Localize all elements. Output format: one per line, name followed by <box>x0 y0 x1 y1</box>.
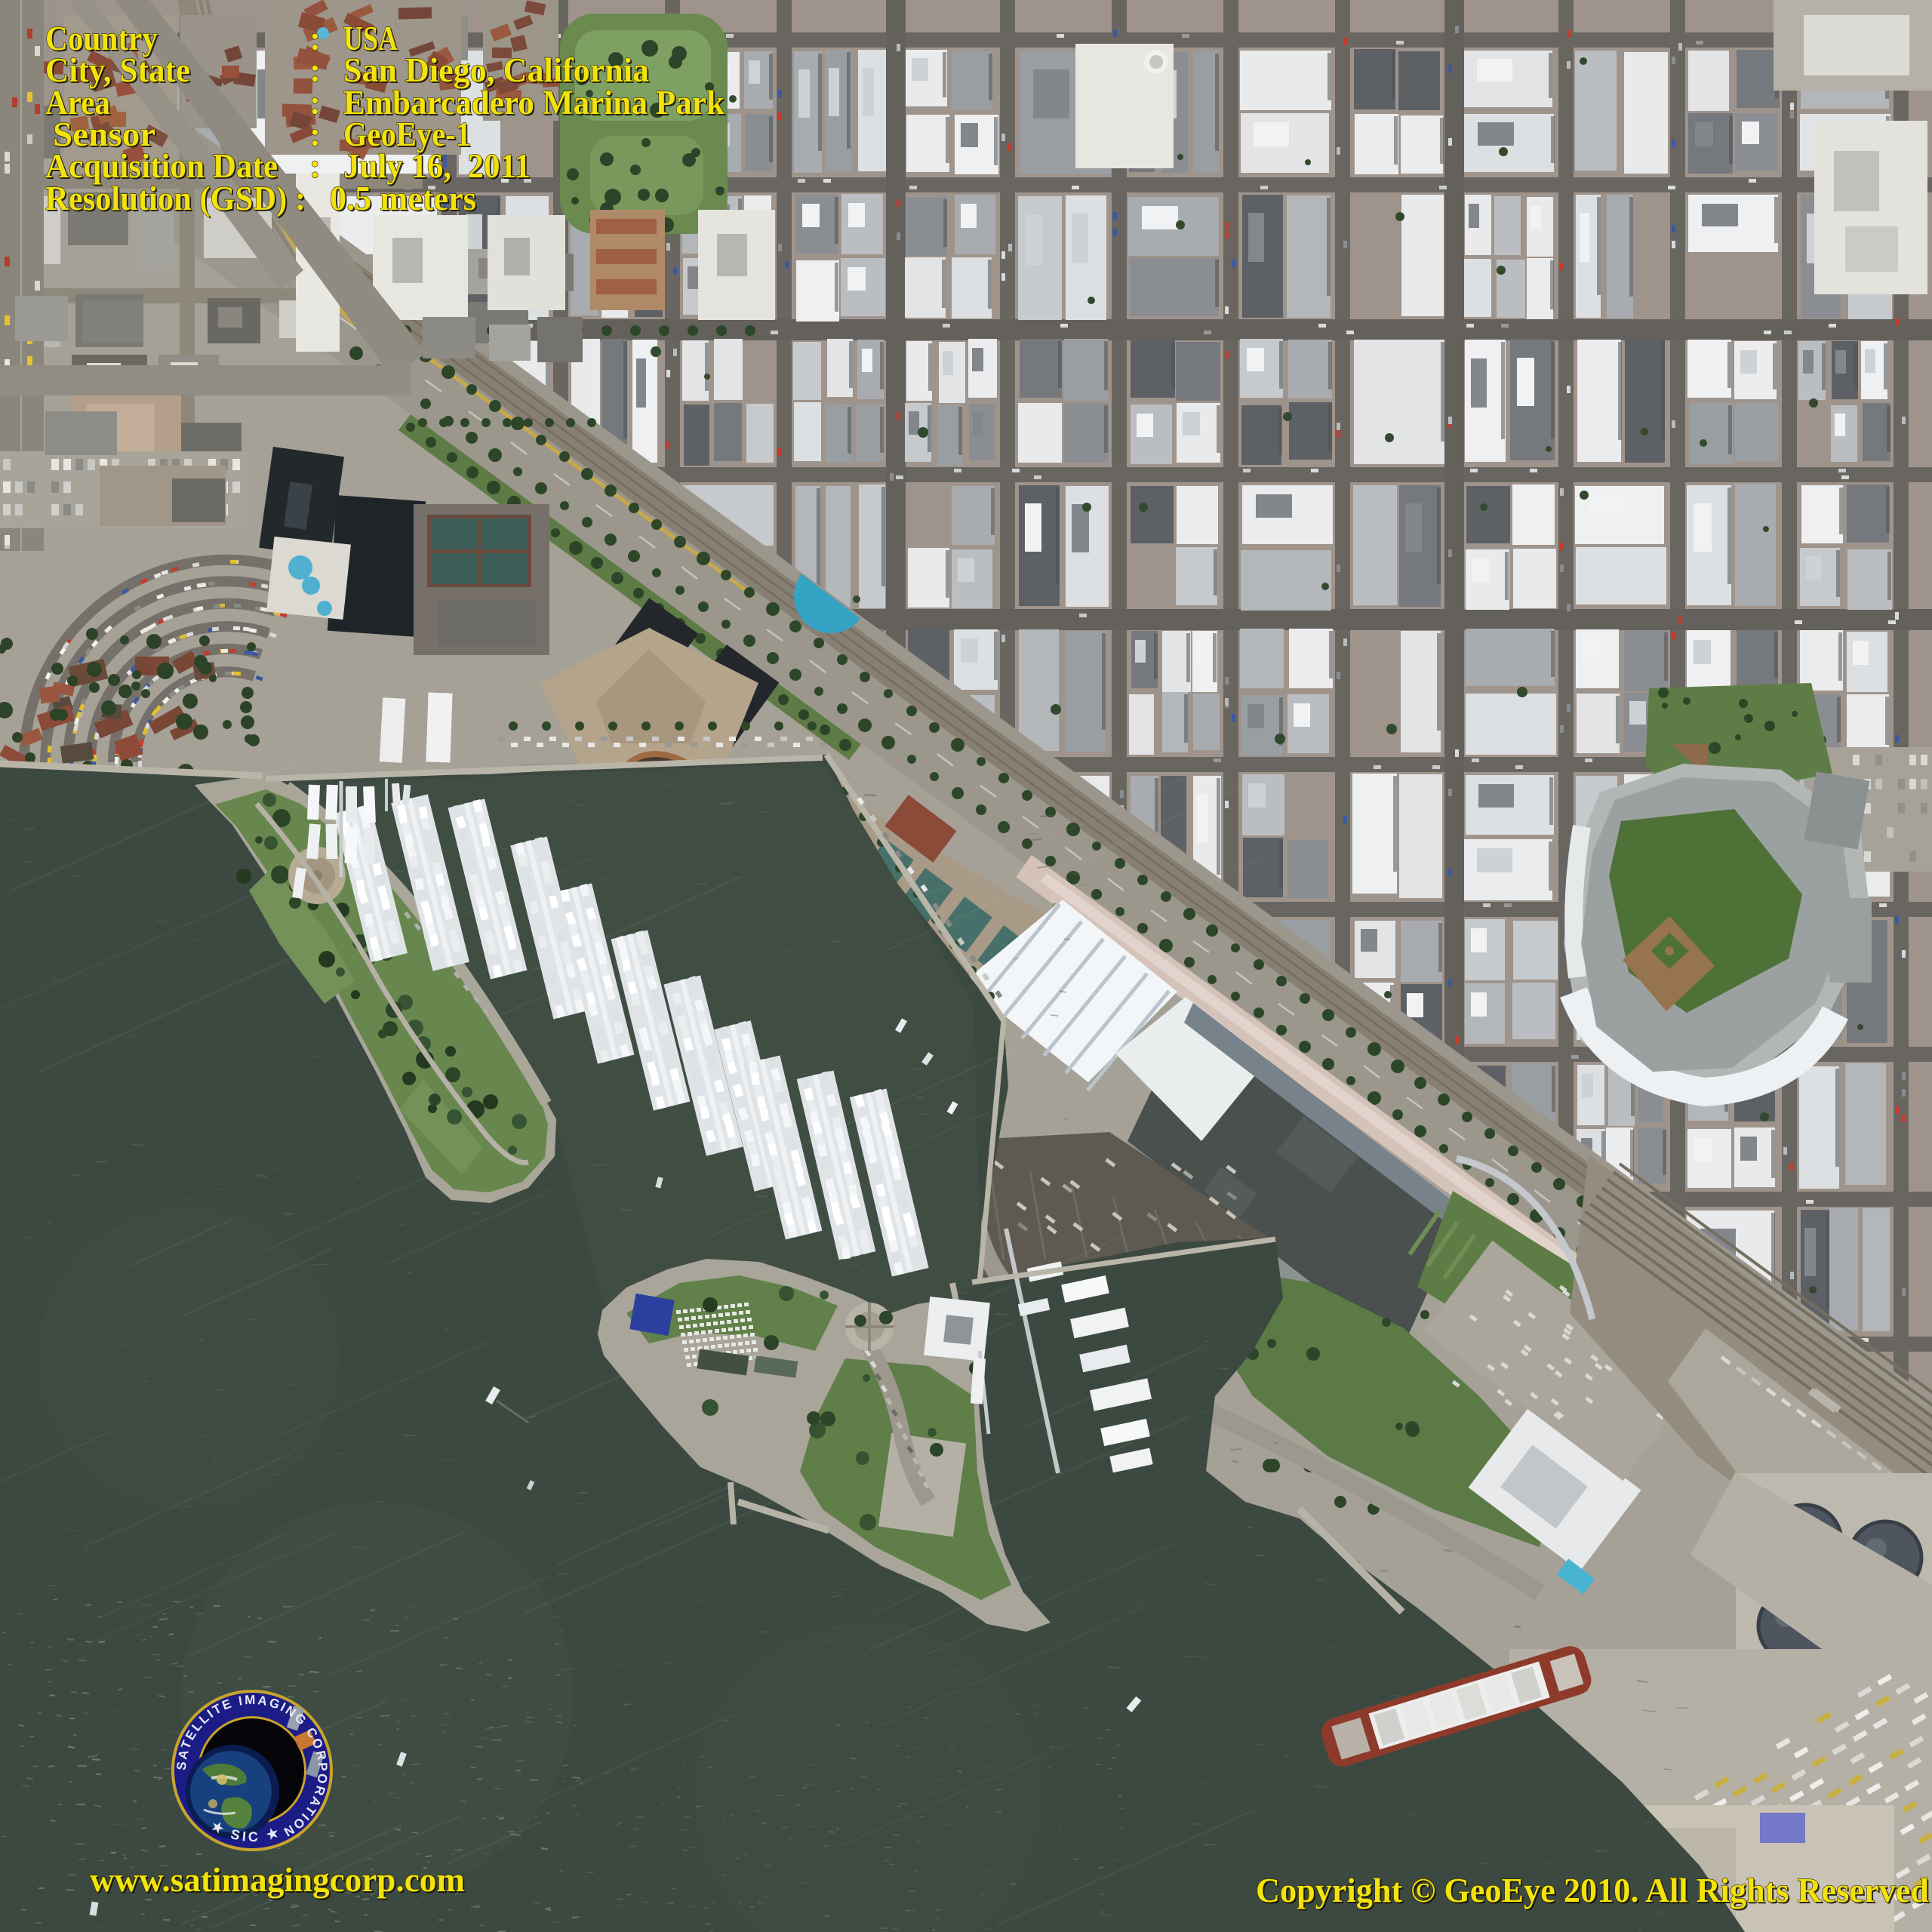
svg-text:Resolution (GSD) :: Resolution (GSD) : <box>45 180 306 217</box>
svg-text:Copyright © GeoEye 2010. All R: Copyright © GeoEye 2010. All Rights Rese… <box>1256 1872 1929 1909</box>
svg-text:www.satimagingcorp.com: www.satimagingcorp.com <box>90 1861 465 1899</box>
svg-text:0.5 meters: 0.5 meters <box>330 180 476 217</box>
svg-text::: : <box>309 147 321 185</box>
